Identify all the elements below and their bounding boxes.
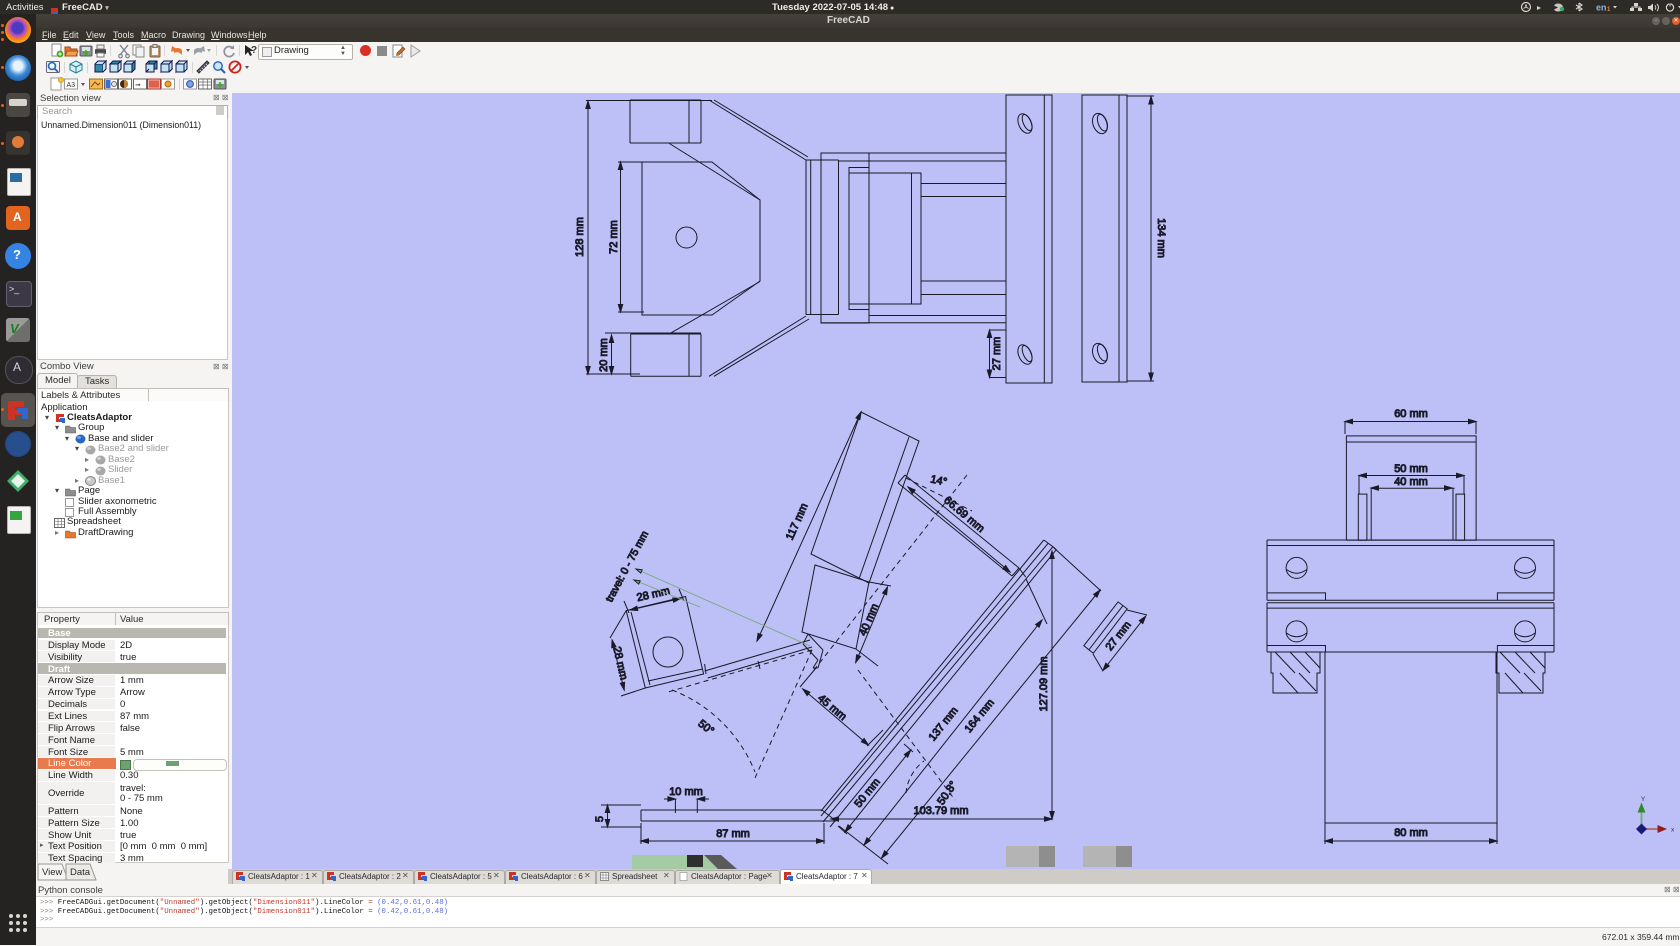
svg-text:➟: ➟ (135, 82, 141, 89)
svg-text:?: ? (251, 45, 257, 56)
svg-text:87 mm: 87 mm (716, 828, 750, 840)
svg-text:134 mm: 134 mm (1155, 218, 1167, 258)
svg-text:20 mm: 20 mm (598, 338, 610, 372)
svg-text:Y: Y (1641, 796, 1646, 803)
svg-text:5: 5 (594, 816, 606, 822)
svg-text:50 mm: 50 mm (1394, 463, 1428, 475)
svg-text:27 mm: 27 mm (991, 337, 1003, 371)
svg-text:View: View (42, 867, 63, 878)
svg-text:Data: Data (70, 867, 91, 878)
svg-text:10 mm: 10 mm (669, 786, 703, 798)
svg-text:A3: A3 (67, 82, 76, 89)
svg-text:60 mm: 60 mm (1394, 408, 1428, 420)
svg-text:1: 1 (1607, 7, 1611, 13)
svg-text:80 mm: 80 mm (1394, 827, 1428, 839)
svg-text:72 mm: 72 mm (608, 220, 620, 254)
svg-text:en: en (1596, 3, 1607, 13)
svg-text:127.09 mm: 127.09 mm (1038, 656, 1050, 711)
svg-text:40 mm: 40 mm (1394, 476, 1428, 488)
svg-text:103.79 mm: 103.79 mm (913, 805, 968, 817)
svg-text:128 mm: 128 mm (574, 217, 586, 257)
